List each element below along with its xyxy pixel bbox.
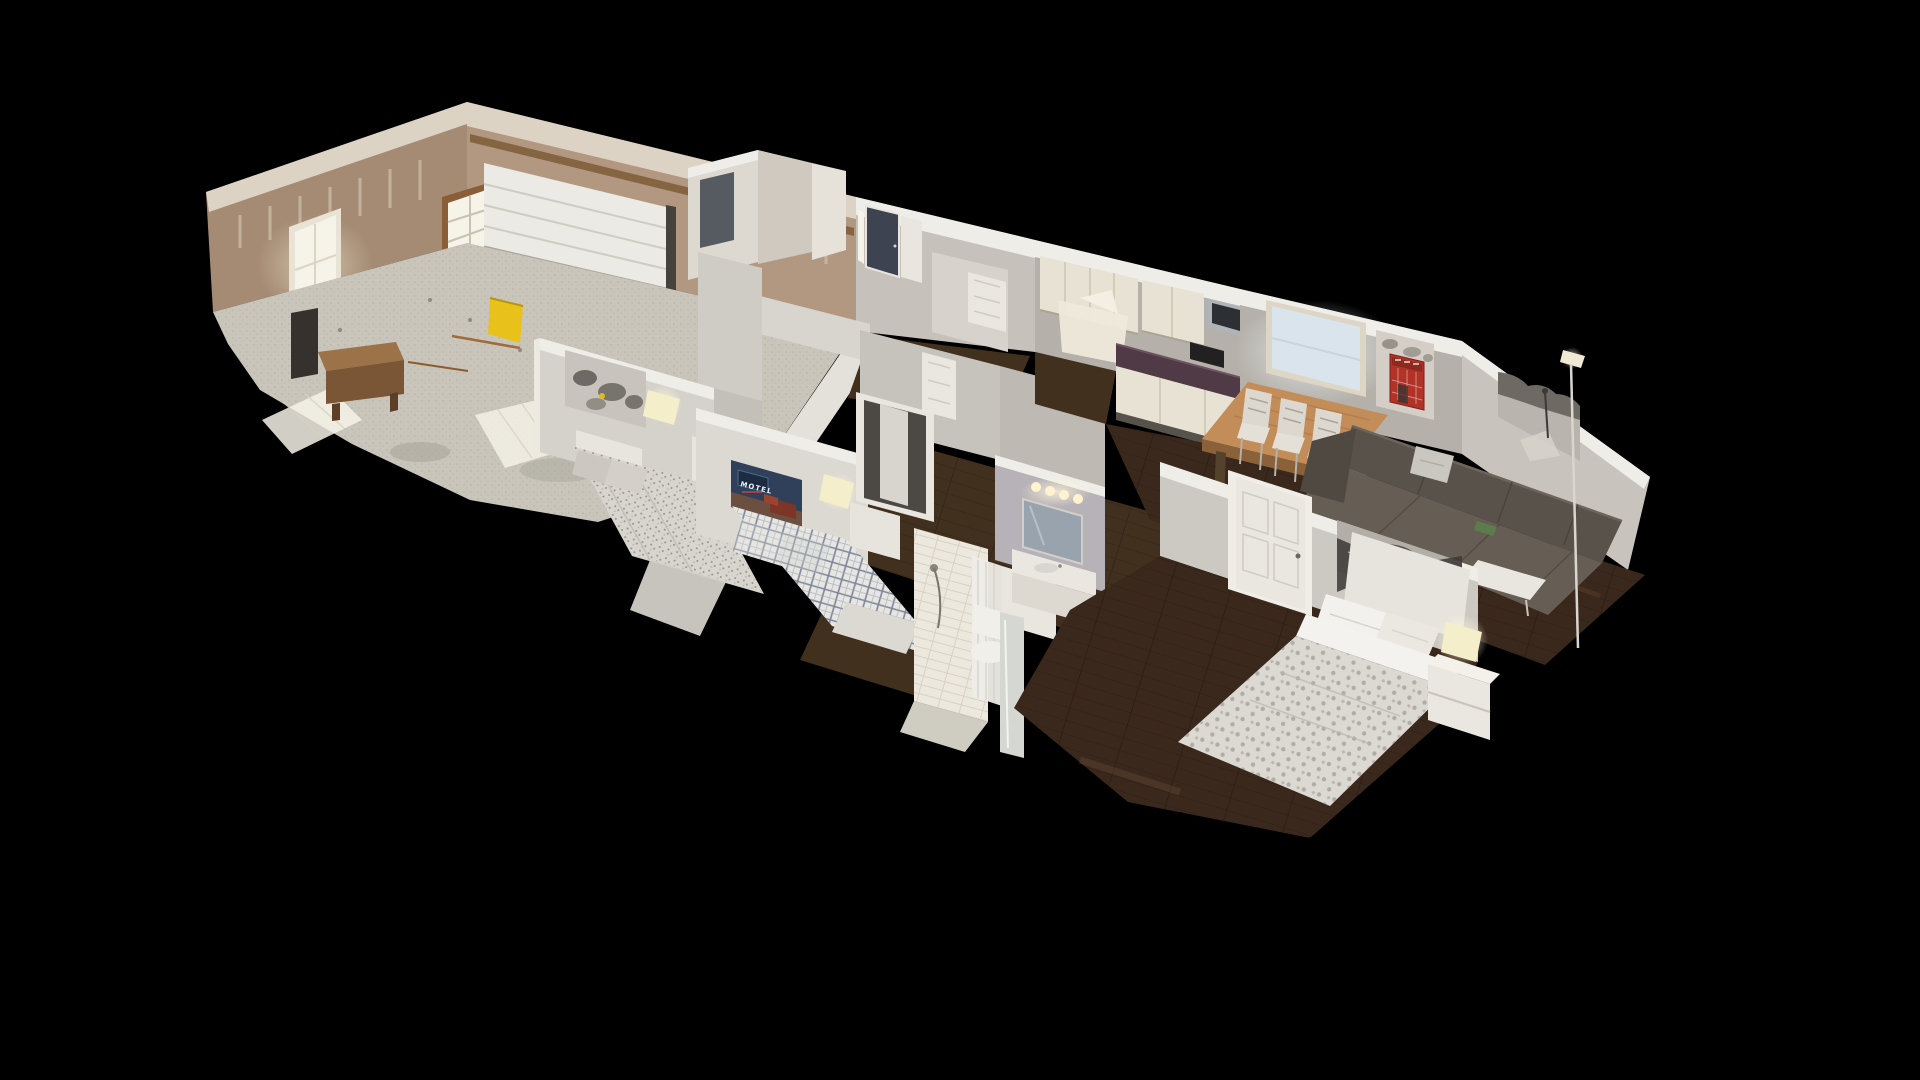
closet-wall-2 xyxy=(758,150,812,264)
dark-shelf xyxy=(291,308,318,379)
dollhouse-render: MOTEL xyxy=(0,0,1920,1080)
dark-doorway xyxy=(700,172,734,248)
door-trim xyxy=(901,216,922,283)
interior-door-white-hall xyxy=(922,352,956,420)
closet-wall-3 xyxy=(812,163,846,260)
table-lamp xyxy=(1436,614,1488,666)
closet-open xyxy=(856,392,934,522)
entry-sidelight xyxy=(858,210,864,264)
dollhouse-viewport[interactable]: MOTEL xyxy=(0,0,1920,1080)
leaning-mirror-panel xyxy=(1000,612,1024,758)
lamppost xyxy=(1542,388,1548,394)
front-door-navy xyxy=(866,206,899,277)
art-red-phone-booth xyxy=(1376,330,1434,420)
garage-door-track xyxy=(666,205,676,291)
interior-door-white-upper xyxy=(968,272,1006,332)
door-knob xyxy=(1296,554,1301,559)
